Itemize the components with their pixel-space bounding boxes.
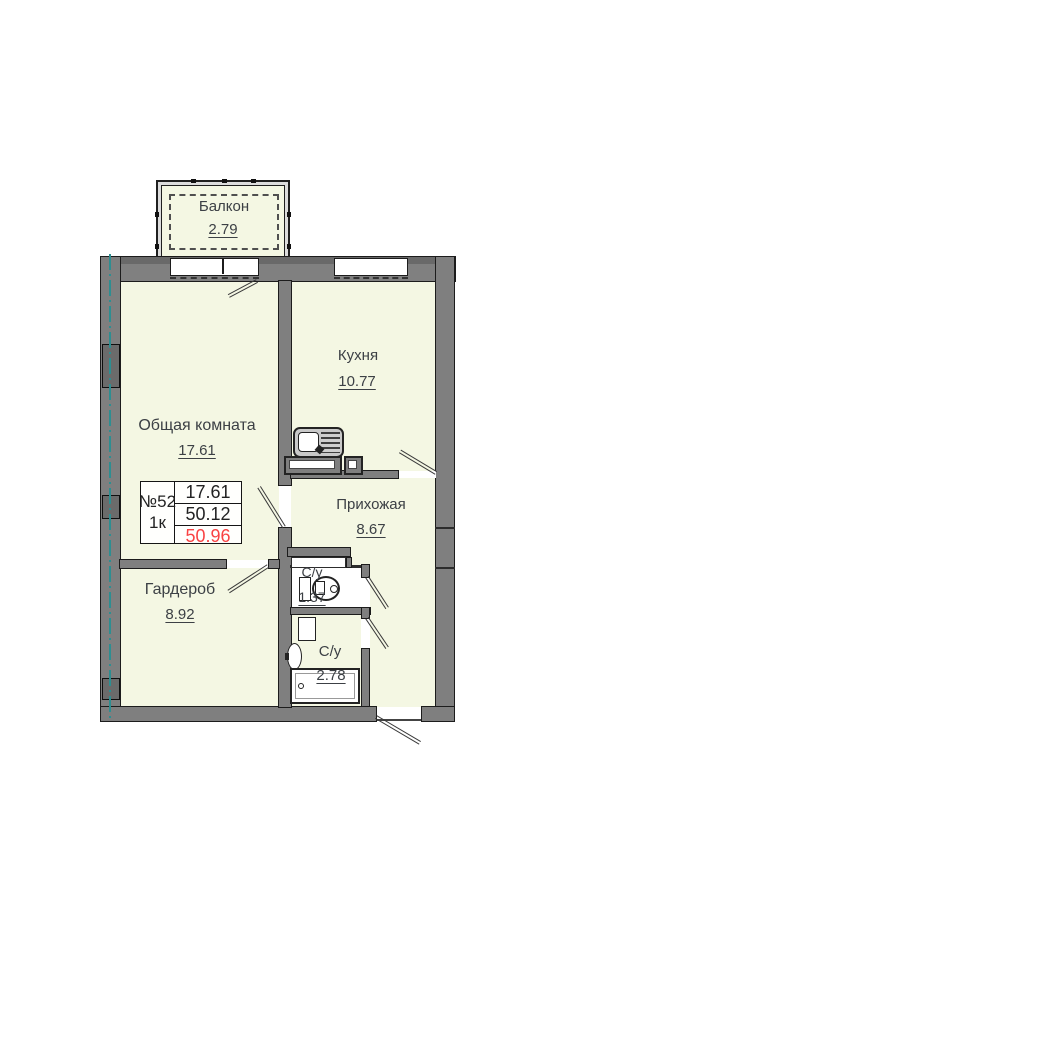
wall-pier xyxy=(102,495,120,519)
bathtub-drain xyxy=(298,683,304,689)
wall-wc-right-c xyxy=(361,648,370,707)
wall-wardrobe-top-right xyxy=(268,559,280,569)
vent-shaft-wall xyxy=(287,547,351,557)
room-label-wc-big: С/у xyxy=(319,643,342,660)
room-area-living: 17.61 xyxy=(178,442,216,459)
kitchen-window xyxy=(334,258,408,276)
living-area-value: 17.61 xyxy=(175,482,241,504)
wall-joint xyxy=(435,527,455,529)
wall-wc-divider xyxy=(290,607,371,615)
room-label-balcony: Балкон xyxy=(199,198,249,215)
glazing-tick xyxy=(222,179,227,183)
floor-plan: Балкон 2.79 Кухня 10.77 Общая комната 17… xyxy=(0,0,1041,1041)
room-area-balcony: 2.79 xyxy=(208,221,237,238)
unit-areas-cells: 17.61 50.12 50.96 xyxy=(175,482,241,543)
unit-number: №52 xyxy=(139,492,176,512)
kitchen-sink xyxy=(293,427,344,458)
wall-joint xyxy=(435,567,455,569)
balcony-door-window xyxy=(170,258,259,276)
sink-drainboard xyxy=(321,432,340,453)
glazing-tick xyxy=(191,179,196,183)
vent-shaft-cap xyxy=(346,557,352,568)
glazing-tick xyxy=(155,244,159,249)
wall-pier xyxy=(102,678,120,700)
kitchen-counter xyxy=(284,456,342,475)
glazing-tick xyxy=(287,244,291,249)
area-no-balcony-value: 50.12 xyxy=(175,504,241,526)
total-area-value: 50.96 xyxy=(175,526,241,547)
room-label-wardrobe: Гардероб xyxy=(145,581,215,599)
counter-top xyxy=(289,460,335,469)
wash-basin xyxy=(287,643,302,670)
balcony-window-sill xyxy=(170,277,259,279)
window-mullion xyxy=(222,259,224,274)
glazing-tick xyxy=(155,212,159,217)
room-label-hallway: Прихожая xyxy=(336,496,406,513)
room-area-wardrobe: 8.92 xyxy=(165,606,194,623)
kitchen-window-sill xyxy=(334,277,408,279)
unit-id-cell: №52 1к xyxy=(141,482,175,543)
wall-bottom-left xyxy=(100,706,377,722)
room-area-kitchen: 10.77 xyxy=(338,373,376,390)
toilet-flush xyxy=(330,585,338,593)
room-area-wc-small: 1.37 xyxy=(298,589,325,605)
cabinet-top xyxy=(348,460,357,469)
wall-bottom-right xyxy=(421,706,455,722)
room-label-kitchen: Кухня xyxy=(338,347,378,364)
wall-right xyxy=(435,256,455,722)
kitchen-cabinet xyxy=(344,456,363,475)
room-label-wc-small: С/у xyxy=(302,564,323,580)
unit-info-table: №52 1к 17.61 50.12 50.96 xyxy=(140,481,242,544)
room-label-living: Общая комната xyxy=(138,417,255,435)
room-area-hallway: 8.67 xyxy=(356,521,385,538)
axis-line xyxy=(109,254,111,722)
room-area-wc-big: 2.78 xyxy=(316,667,345,684)
wall-wardrobe-top-left xyxy=(119,559,227,569)
washing-machine xyxy=(298,617,316,641)
glazing-tick xyxy=(287,212,291,217)
basin-faucet xyxy=(285,653,289,660)
glazing-tick xyxy=(251,179,256,183)
unit-type: 1к xyxy=(149,513,166,533)
wall-pier xyxy=(102,344,120,388)
